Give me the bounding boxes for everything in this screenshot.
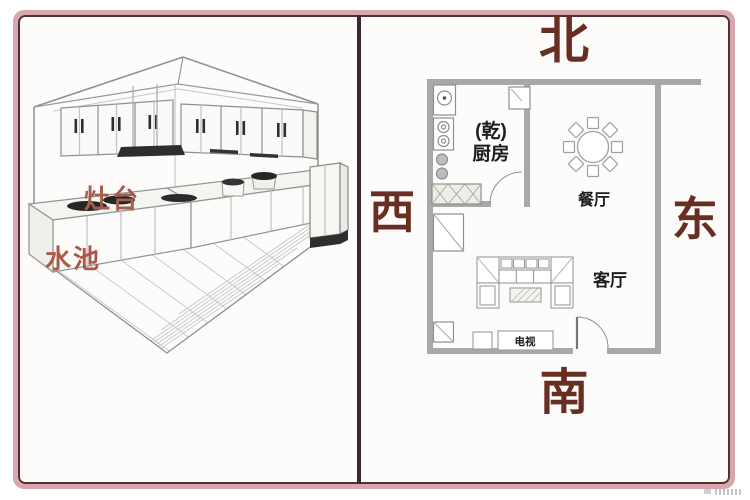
dining-table (564, 118, 623, 177)
flue-column (509, 87, 530, 109)
dining-label: 餐厅 (577, 190, 610, 209)
direction-west: 西 (366, 189, 418, 237)
direction-east: 东 (669, 196, 721, 244)
stove-symbol (434, 118, 454, 150)
entry-door (577, 317, 608, 349)
sink-label: 水池 (45, 239, 101, 276)
direction-north: 北 (519, 15, 609, 68)
stove-label: 灶台 (84, 179, 140, 216)
panel-divider (357, 15, 361, 484)
tall-cabinet (310, 163, 348, 248)
sofa-set (477, 257, 573, 308)
gas-canisters (437, 154, 448, 179)
tv-bench (473, 331, 553, 350)
kitchen-counter-hatched (432, 184, 481, 204)
rice-cooker (222, 179, 244, 197)
coffee-table (510, 288, 541, 302)
direction-south: 南 (533, 367, 595, 418)
upper-cabinets-right (181, 104, 317, 159)
kitchen-door-arc (490, 172, 522, 204)
kitchen-annotation-label: (乾) (475, 119, 507, 142)
watermark (704, 488, 743, 495)
fridge-symbol (434, 214, 464, 251)
corner-cabinet-symbol (434, 322, 454, 342)
kitchen-label: 厨房 (472, 143, 509, 164)
plan-walls (427, 79, 701, 354)
tv-label: 电视 (515, 335, 536, 348)
cooking-pot (251, 172, 277, 189)
sink-symbol (434, 85, 456, 115)
living-label: 客厅 (592, 270, 627, 290)
